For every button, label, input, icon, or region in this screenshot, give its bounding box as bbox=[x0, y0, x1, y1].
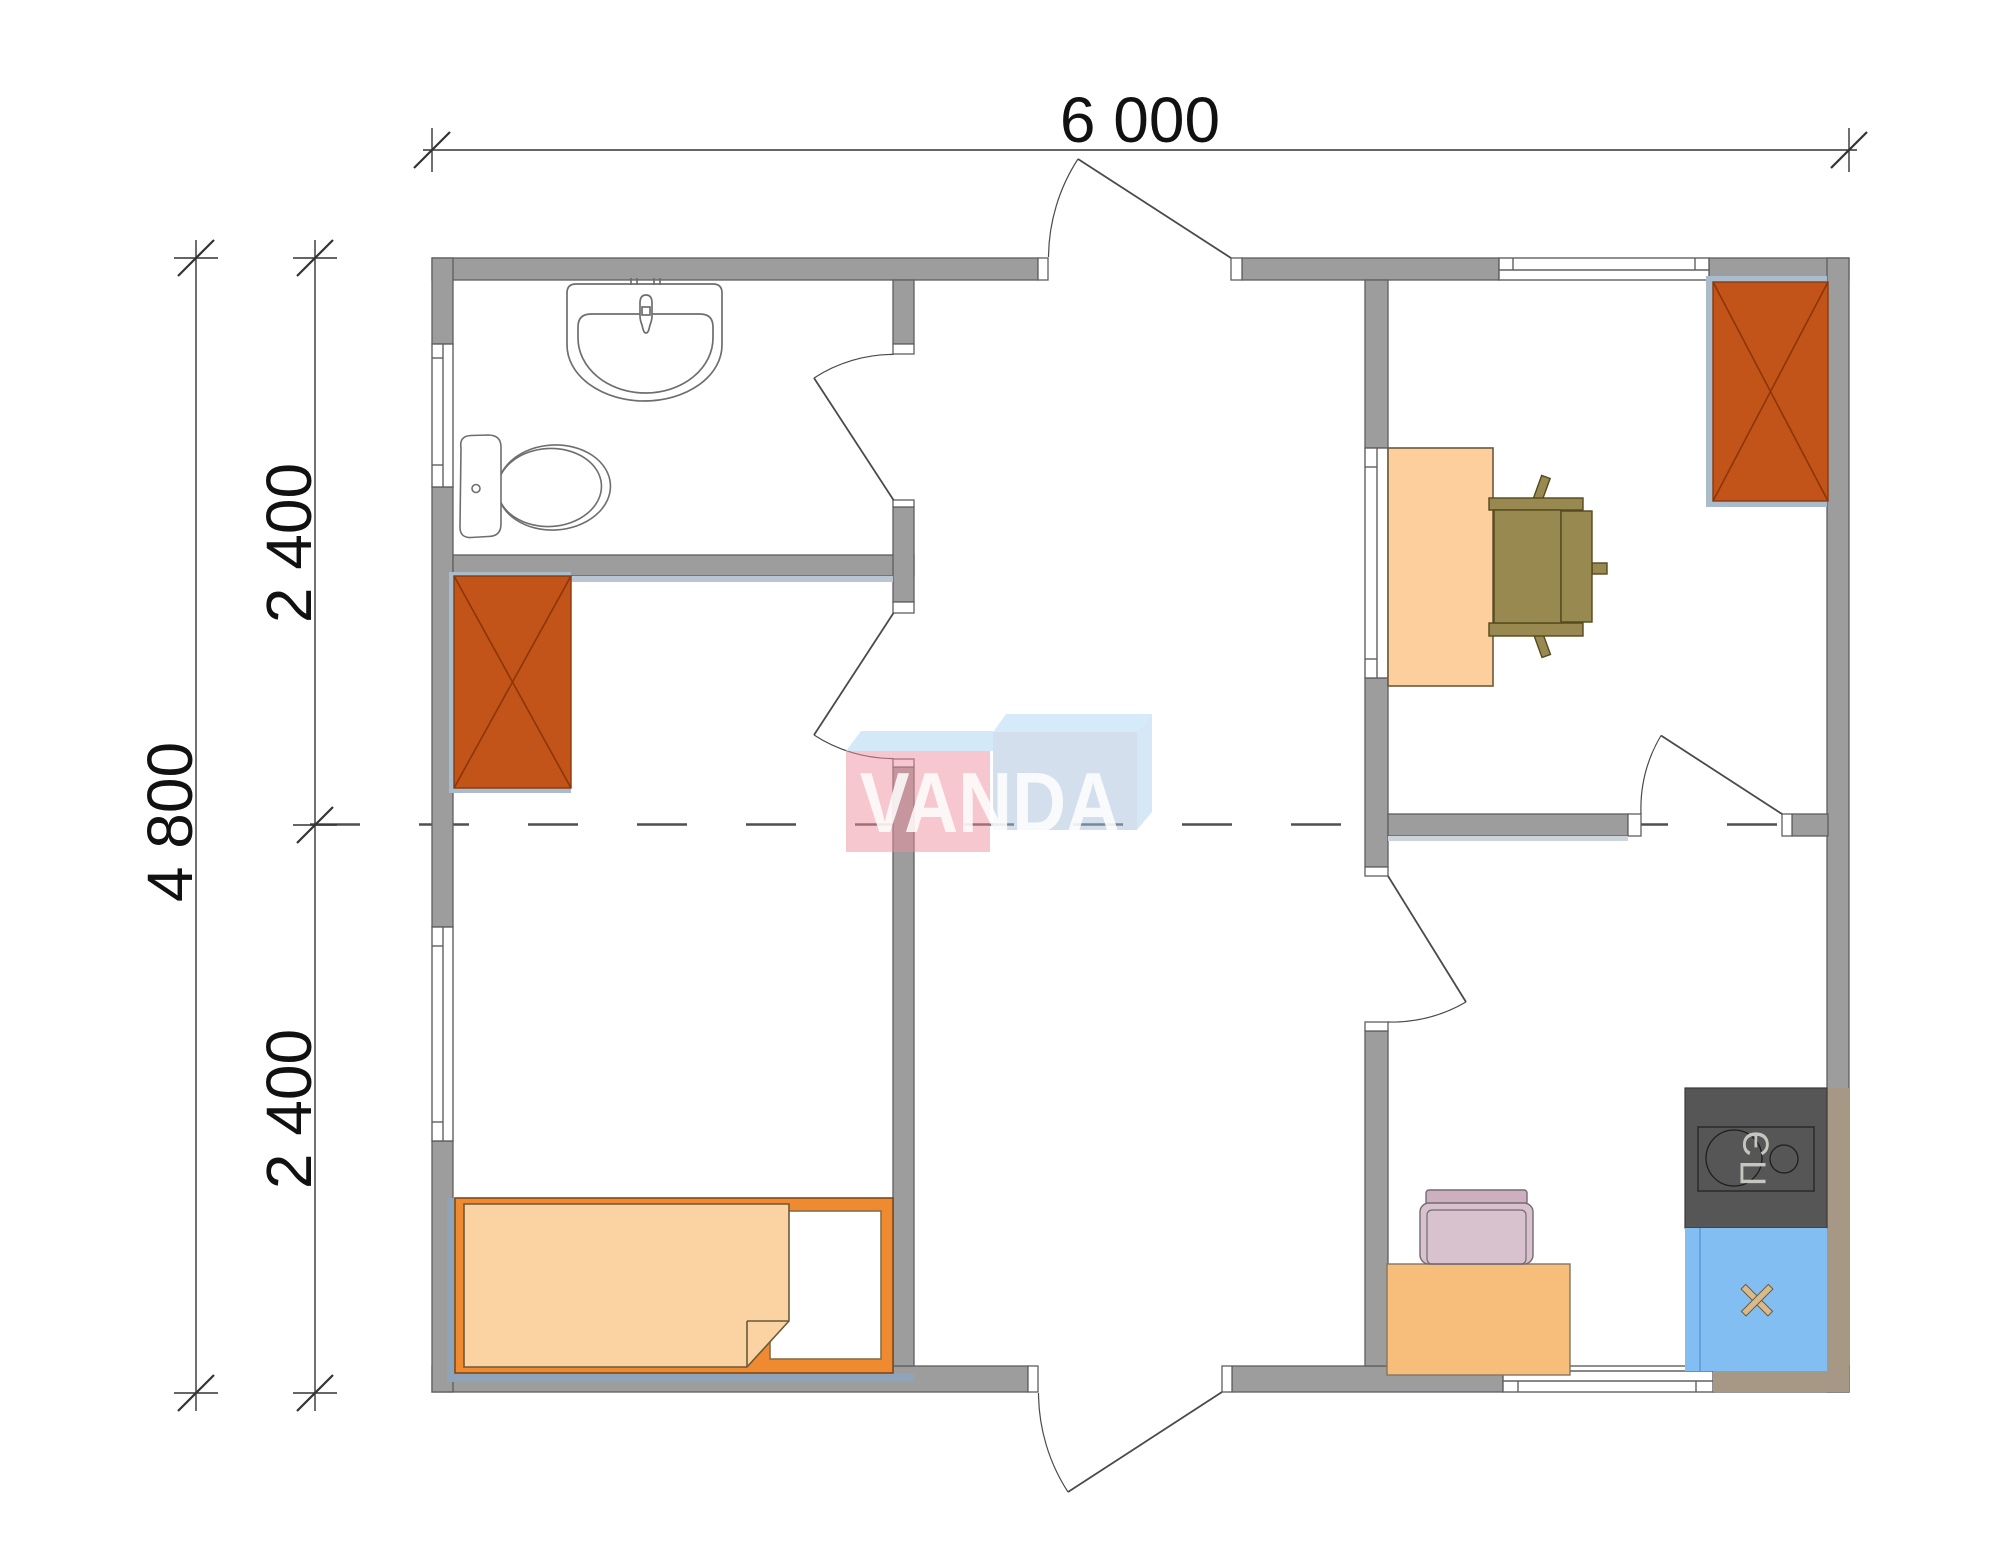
svg-text:Э: Э bbox=[1736, 1131, 1777, 1157]
svg-text:VANDA: VANDA bbox=[860, 756, 1120, 850]
svg-text:П: П bbox=[1733, 1160, 1774, 1186]
svg-text:6 000: 6 000 bbox=[1060, 84, 1220, 156]
svg-text:4 800: 4 800 bbox=[134, 742, 206, 902]
svg-text:2 400: 2 400 bbox=[253, 1029, 325, 1189]
svg-text:2 400: 2 400 bbox=[253, 463, 325, 623]
